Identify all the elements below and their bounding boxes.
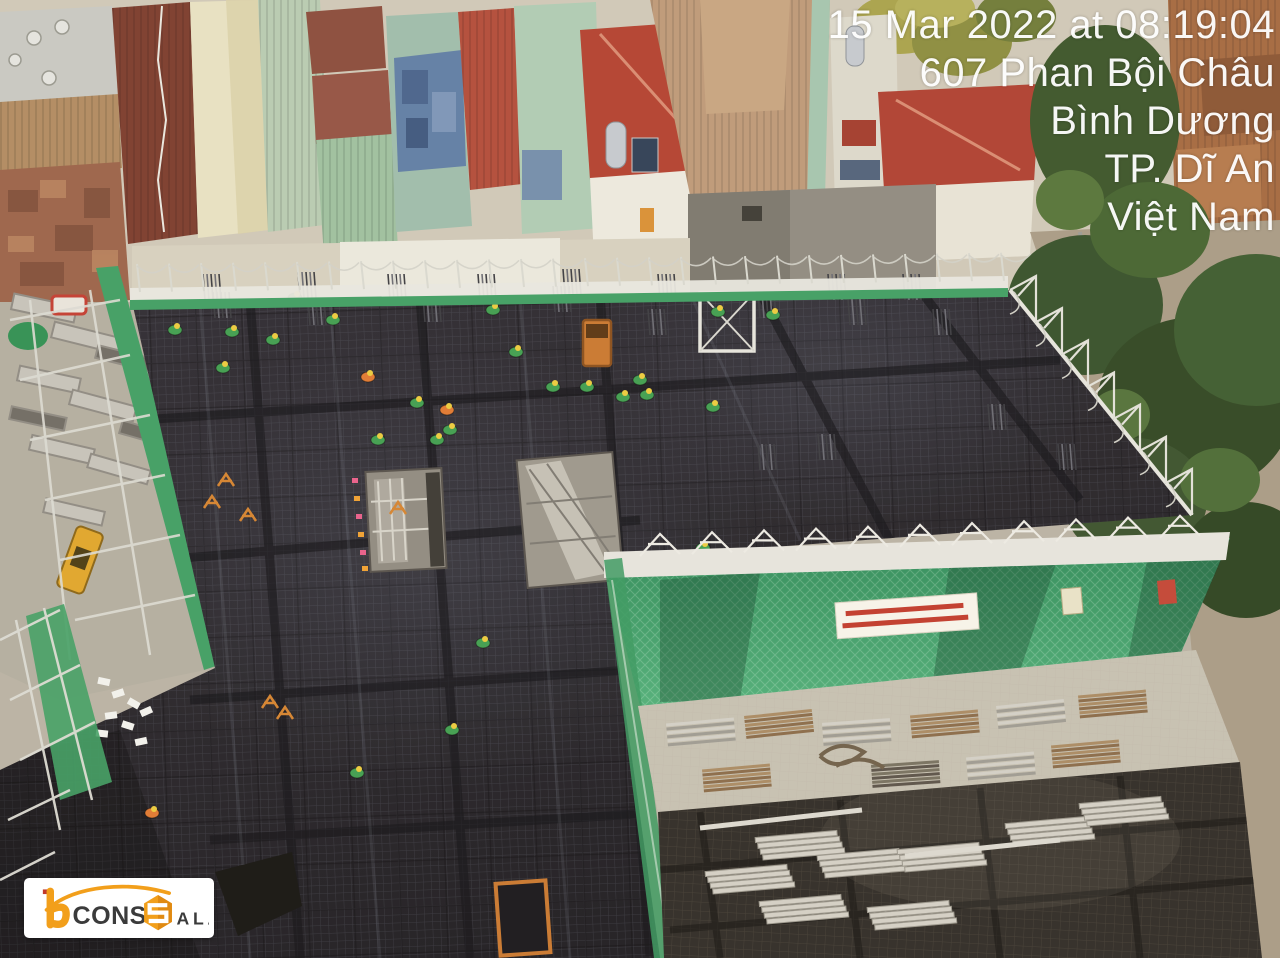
overlay-address: 607 Phan Bội Châu	[828, 49, 1275, 97]
overlay-city: TP. Dĩ An	[828, 145, 1275, 193]
overlay-province: Bình Dương	[828, 97, 1275, 145]
logo-word-ala: ALA	[177, 909, 209, 929]
overlay-country: Việt Nam	[828, 193, 1275, 241]
logo-word-cons: CONS	[73, 902, 147, 930]
timestamp-overlay: 15 Mar 2022 at 08:19:04 607 Phan Bội Châ…	[828, 1, 1275, 241]
aerial-construction-photo: 15 Mar 2022 at 08:19:04 607 Phan Bội Châ…	[0, 0, 1280, 958]
overlay-datetime: 15 Mar 2022 at 08:19:04	[828, 1, 1275, 49]
logo-graphic: CONS ALA	[29, 882, 209, 934]
logo-b-glyph	[50, 891, 66, 924]
bcons-sala-logo: CONS ALA	[24, 878, 214, 938]
logo-s-glyph	[144, 895, 172, 930]
